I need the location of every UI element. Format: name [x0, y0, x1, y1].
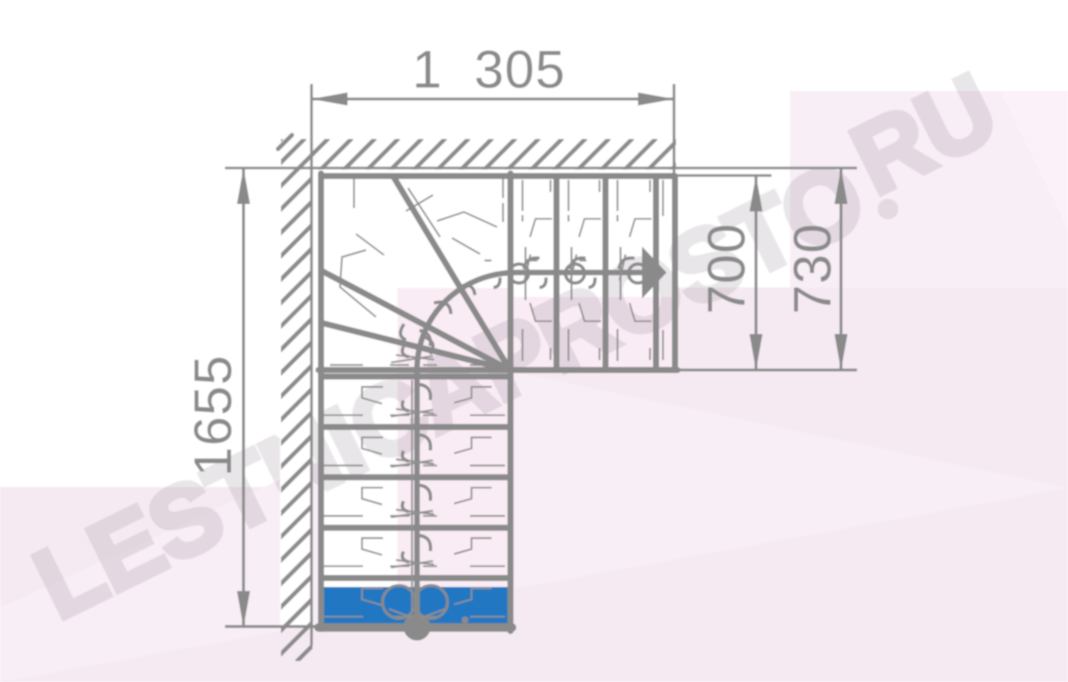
svg-text:730: 730 [784, 223, 843, 314]
svg-text:1: 1 [412, 41, 441, 100]
svg-text:700: 700 [698, 223, 757, 314]
svg-text:1655: 1655 [184, 355, 243, 477]
svg-text:305: 305 [474, 41, 565, 100]
